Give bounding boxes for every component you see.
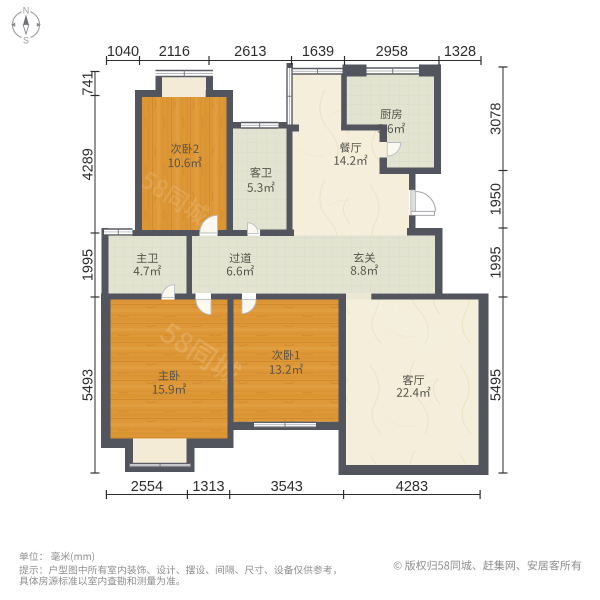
- svg-text:2116: 2116: [159, 44, 190, 60]
- svg-text:2554: 2554: [131, 479, 163, 495]
- svg-text:2613: 2613: [234, 44, 266, 60]
- svg-text:2958: 2958: [376, 44, 408, 60]
- svg-text:S: S: [23, 36, 29, 46]
- svg-text:1639: 1639: [302, 44, 334, 60]
- svg-text:1040: 1040: [107, 44, 139, 60]
- svg-text:1313: 1313: [192, 479, 224, 495]
- svg-text:741: 741: [81, 71, 97, 95]
- svg-text:N: N: [23, 6, 30, 16]
- svg-text:3543: 3543: [271, 479, 303, 495]
- svg-text:1995: 1995: [81, 249, 97, 281]
- svg-text:5495: 5495: [489, 369, 505, 401]
- svg-text:4289: 4289: [81, 148, 97, 180]
- svg-text:1950: 1950: [489, 183, 505, 215]
- svg-text:3078: 3078: [489, 103, 505, 135]
- svg-text:1328: 1328: [444, 44, 476, 60]
- svg-text:1995: 1995: [489, 246, 505, 278]
- svg-text:4283: 4283: [396, 479, 428, 495]
- svg-text:5493: 5493: [81, 369, 97, 401]
